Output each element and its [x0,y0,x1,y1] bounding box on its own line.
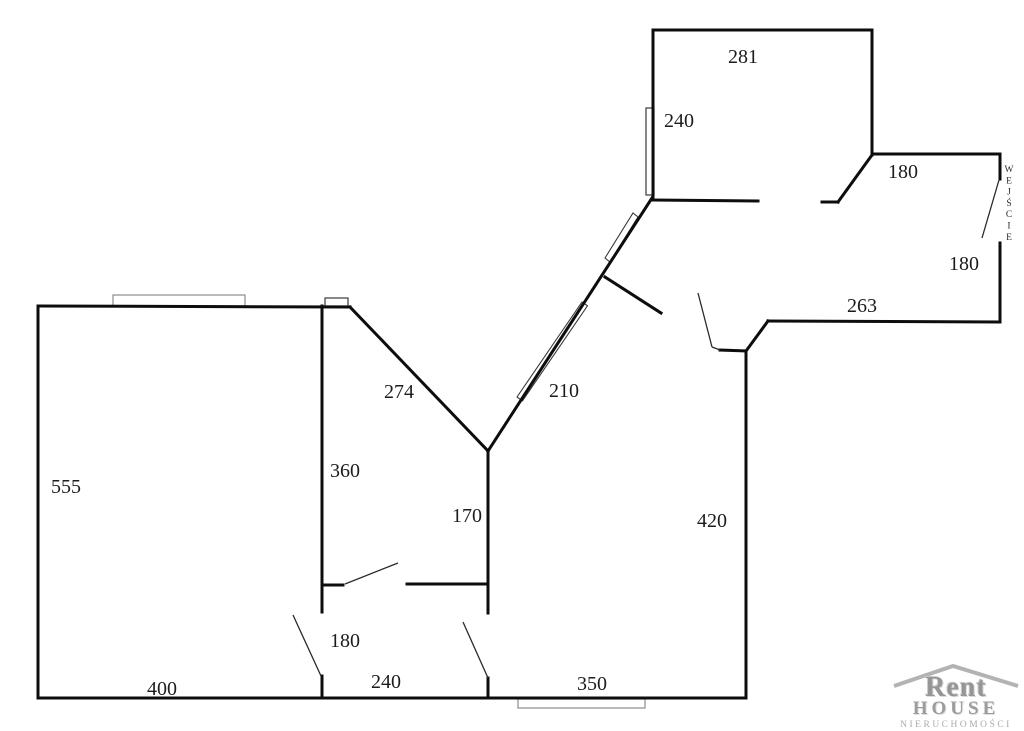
logo-brand-house: HOUSE [889,699,1023,718]
window [113,295,245,306]
entrance-label-letter: I [1007,222,1010,232]
wall-segment [38,306,350,307]
door-swing [698,293,712,347]
dimension-label: 180 [330,630,360,652]
floor-plan-canvas: 2812401801802632742103605551704201804002… [0,0,1024,731]
wall-segment [488,198,652,451]
dimension-label: 400 [147,678,177,700]
window [605,213,638,262]
dimension-label: 170 [452,505,482,527]
dimension-label: 180 [888,161,918,183]
floor-plan-page: 2812401801802632742103605551704201804002… [0,0,1024,731]
agency-logo: Rent HOUSE NIERUCHOMOŚCI [889,661,1023,731]
dimension-label: 360 [330,460,360,482]
door-swing [345,563,398,584]
wall-segment [838,155,872,202]
entrance-label-letter: W [1005,165,1014,175]
dimension-label: 180 [949,253,979,275]
wall-segment [605,277,661,313]
dimension-label: 240 [664,110,694,132]
logo-tagline: NIERUCHOMOŚCI [889,721,1023,731]
door-swing [463,622,488,678]
dimension-label: 210 [549,380,579,402]
dimension-label: 350 [577,673,607,695]
window [325,298,348,306]
dimension-label: 240 [371,671,401,693]
door-swing [293,615,321,676]
wall-segment [720,350,746,351]
dimension-label: 281 [728,46,758,68]
wall-segment [653,200,758,201]
dimension-label: 263 [847,295,877,317]
dimension-label: 555 [51,476,81,498]
entrance-label-letter: C [1006,210,1012,220]
entrance-label-letter: E [1006,176,1012,186]
entrance-label-letter: J [1007,188,1011,198]
entrance-label-letter: Ś [1006,197,1011,209]
wall-segment [350,307,488,451]
dimension-label: 420 [697,510,727,532]
wall-segment [768,321,1000,322]
dimension-label: 274 [384,381,414,403]
entrance-label-letter: E [1006,233,1012,243]
window [518,699,645,708]
door-swing [982,180,999,238]
wall-segment [746,321,768,351]
